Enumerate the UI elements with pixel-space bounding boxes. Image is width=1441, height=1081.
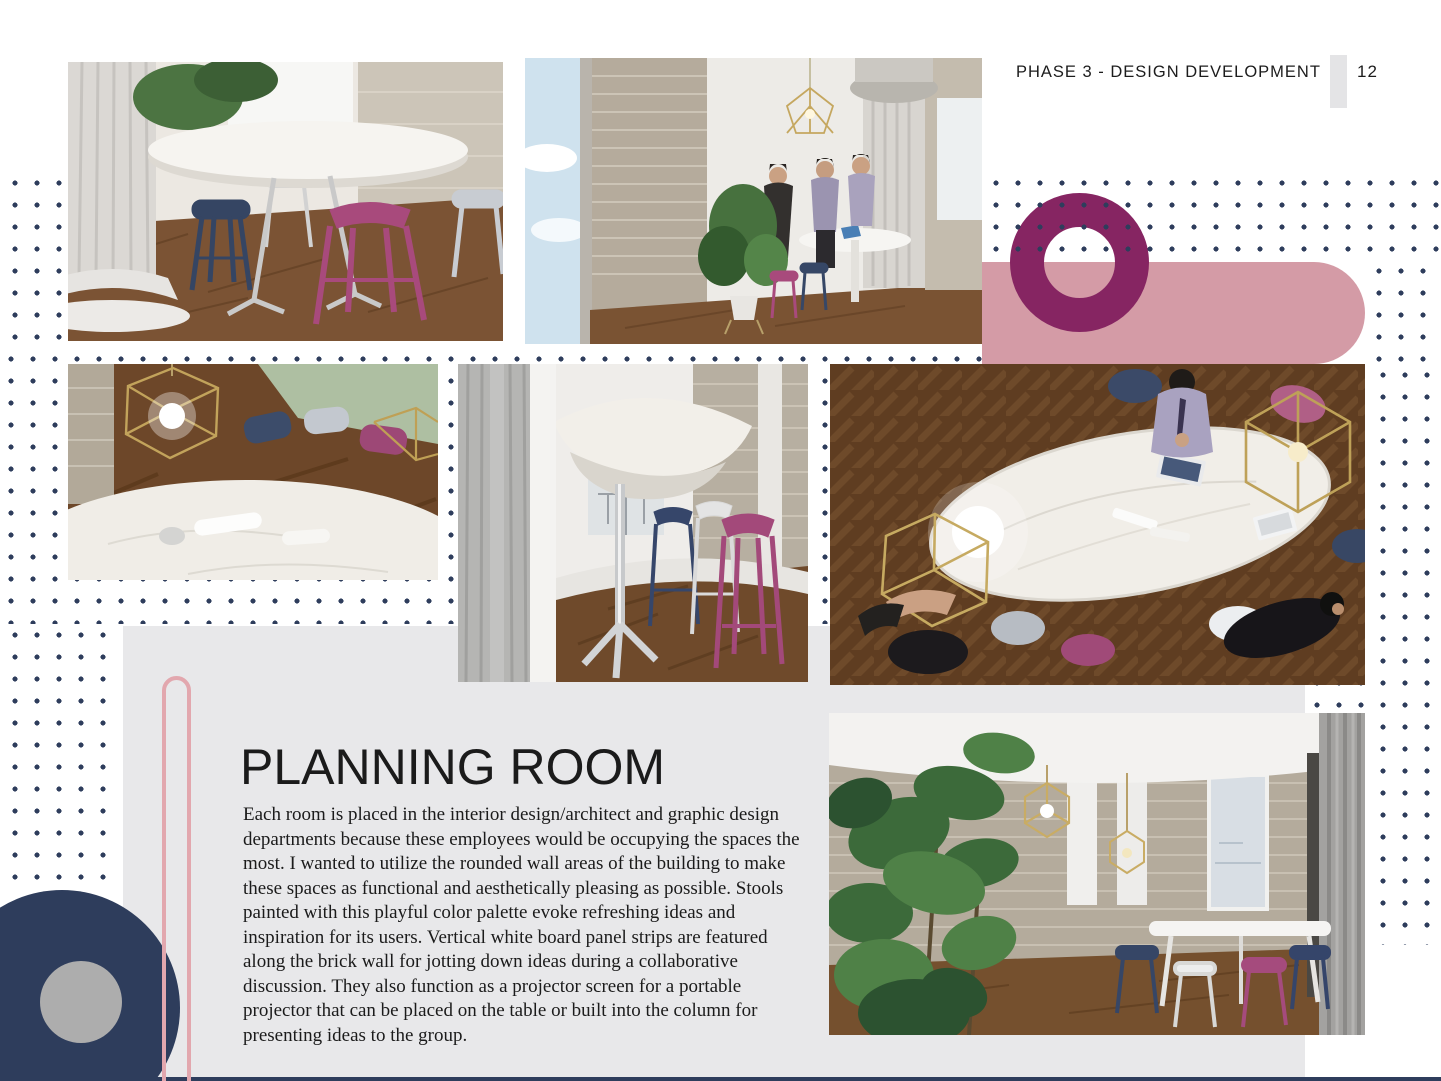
- page-title: PLANNING ROOM: [240, 738, 860, 796]
- render-column-stools-image: [458, 364, 808, 682]
- phase-header-label: PHASE 3 - DESIGN DEVELOPMENT: [1016, 63, 1316, 82]
- header-divider-bar: [1330, 55, 1347, 108]
- pink-capsule-outline: [162, 676, 191, 1081]
- gray-inner-circle-shape: [40, 961, 122, 1043]
- render-planning-room-image: [829, 713, 1365, 1035]
- body-paragraph: Each room is placed in the interior desi…: [243, 803, 803, 1048]
- dot-pattern-left-bottom: [4, 624, 116, 894]
- render-pendant-table-image: [68, 364, 438, 580]
- page-number: 12: [1357, 62, 1378, 82]
- bottom-rule-line: [120, 1077, 1441, 1081]
- dot-pattern-right-top: [985, 172, 1441, 264]
- dot-pattern-right-edge-upper: [1368, 260, 1441, 364]
- render-stools-closeup-image: [68, 62, 503, 341]
- render-meeting-corner-image: [525, 58, 982, 344]
- render-table-top-view-image: [830, 364, 1365, 685]
- dot-pattern-left-top: [4, 172, 66, 350]
- portfolio-page: PHASE 3 - DESIGN DEVELOPMENT 12: [0, 0, 1441, 1081]
